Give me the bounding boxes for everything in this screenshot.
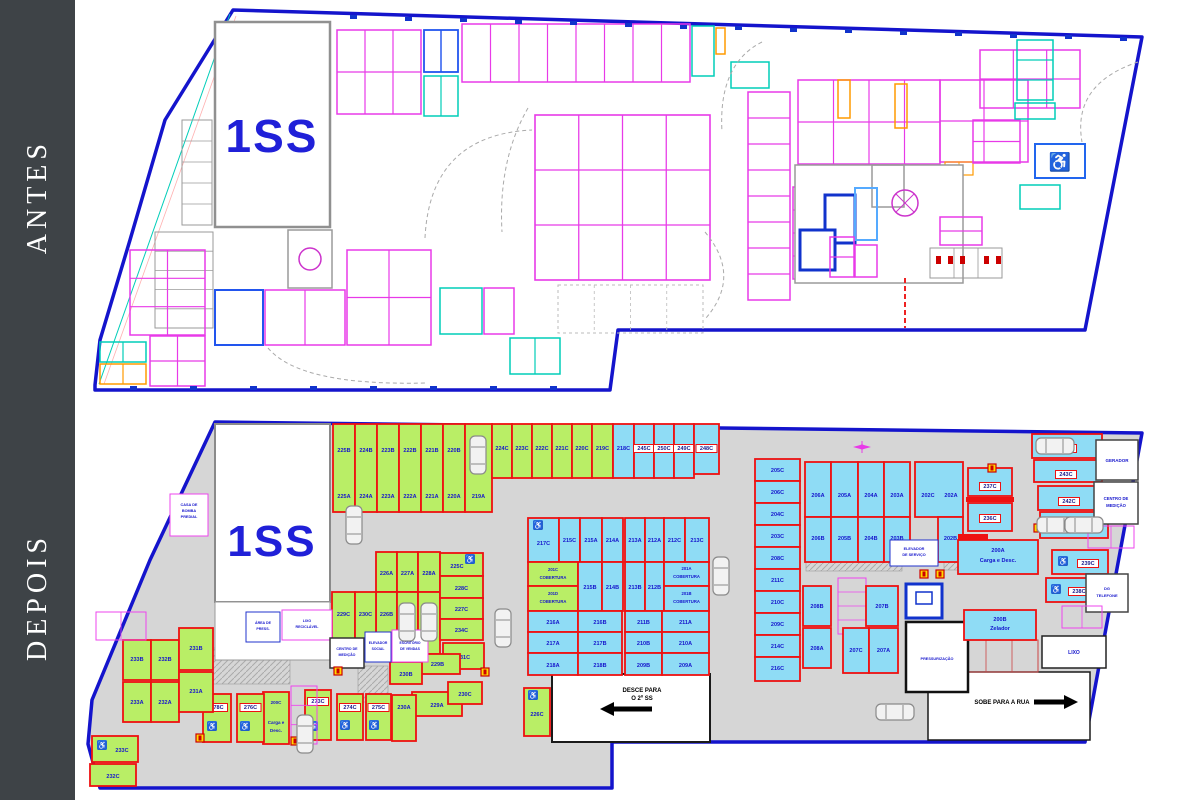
stall-label: 232B [158, 657, 171, 663]
stall-label: 202B [944, 536, 957, 542]
label-lixo: LIXO [1068, 650, 1080, 656]
stall-276C [237, 694, 264, 742]
stall-label: 217A [546, 641, 559, 647]
stall-label: 223C [515, 446, 528, 452]
stall-label: 224C [495, 446, 508, 452]
structural-column [460, 18, 467, 22]
stall-label: 218B [593, 663, 606, 669]
stall-label: 207B [875, 604, 888, 610]
stall-204A [858, 462, 884, 517]
wheelchair-glyph: ♿ [340, 720, 350, 730]
text: LIXO [303, 619, 312, 623]
car-glyph [346, 506, 362, 544]
stall-label: 231A [189, 689, 202, 695]
structural-column [680, 25, 687, 29]
stall-label: 205C [771, 468, 784, 474]
text: CENTRO DE [1104, 496, 1129, 501]
label-antes: ANTES [22, 139, 54, 254]
stall-label: 248C [700, 446, 713, 452]
stall-label: 209C [771, 622, 784, 628]
stall-label: 216B [593, 620, 606, 626]
stall-label: 231B [189, 646, 202, 652]
structural-column [310, 386, 317, 390]
text: MEDIÇÃO [1106, 503, 1127, 508]
car-glyph [495, 609, 511, 647]
stall-206A [805, 462, 831, 517]
stall-label: 212C [668, 538, 681, 544]
text: SOCIAL [372, 647, 385, 651]
car-glyph [713, 557, 729, 595]
stall-label: 207A [877, 648, 890, 654]
stall-275C [366, 694, 391, 740]
stall-label: 213B [628, 585, 641, 591]
stall-label: 227A [401, 571, 414, 577]
stall-label: 207C [849, 648, 862, 654]
stall-label: COBERTURA [673, 599, 700, 604]
stall-label: 221B [425, 448, 438, 454]
structural-column [1010, 34, 1017, 38]
car-body [421, 603, 437, 641]
wheelchair-glyph: ♿ [240, 721, 250, 731]
stall-label: 228C [455, 586, 468, 592]
stall-label: 200B [993, 617, 1006, 623]
stall-label: 275C [372, 705, 385, 711]
stall-label: 212B [648, 585, 661, 591]
label-gerador: GERADOR [1105, 458, 1129, 463]
stall-label: 274C [343, 705, 356, 711]
stall-label: 214A [606, 538, 619, 544]
stall-label: 212A [648, 538, 661, 544]
stall-label: Carga e [268, 720, 285, 725]
stall-label: COBERTURA [540, 599, 567, 604]
text: DG [1104, 586, 1110, 591]
stall-label: 226A [380, 571, 393, 577]
structural-column [190, 386, 197, 390]
car-glyph [297, 715, 313, 753]
fire-extinguisher-glyph [923, 572, 926, 577]
stall-label: 250C [657, 446, 670, 452]
structural-column [955, 32, 962, 36]
stall-label: 239C [1081, 561, 1094, 567]
stall-label: 217C [537, 541, 550, 547]
stall-label: 217B [593, 641, 606, 647]
text: CENTRO DE [336, 647, 358, 651]
stall-label: 243C [1059, 472, 1072, 478]
stall-label: 224B [359, 448, 372, 454]
stall-label: 210C [771, 600, 784, 606]
stall-label: 203A [890, 493, 903, 499]
text: PRESS. [256, 627, 269, 631]
structural-column [900, 31, 907, 35]
car-body [297, 715, 313, 753]
stall-label: 233B [130, 657, 143, 663]
label-sobe: SOBE PARA A RUA [974, 700, 1030, 706]
stall-200B [964, 610, 1036, 640]
stall-201C [528, 562, 578, 586]
stall-label: 205B [838, 536, 851, 542]
stall-label: 210A [679, 641, 692, 647]
wheelchair-glyph: ♿ [97, 740, 107, 750]
stall-label: 201B [681, 591, 691, 596]
structural-column [550, 386, 557, 390]
stall-202C [915, 462, 963, 517]
stall-label: 223B [381, 448, 394, 454]
stall-label: 202C [921, 493, 934, 499]
structural-column [250, 386, 257, 390]
stall-label: 230B [399, 672, 412, 678]
stall-label: 233C [115, 748, 128, 754]
car-body [346, 506, 362, 544]
text: TELEFONE [1096, 593, 1118, 598]
label-desce: DESCE PARA [623, 688, 663, 694]
stall-label: 211A [679, 620, 692, 626]
stall-label: 230C [359, 612, 372, 618]
text: DE SERVIÇO [902, 553, 925, 557]
stall-label: 213C [690, 538, 703, 544]
stall-label: 237C [983, 484, 996, 490]
stall-label: 221A [425, 494, 438, 500]
fire-extinguisher-glyph [939, 572, 942, 577]
elevator-shaft [906, 584, 942, 618]
structural-column [490, 386, 497, 390]
stall-label: 213A [628, 538, 641, 544]
stall-label: 273C [311, 699, 324, 705]
stall-label: 204B [864, 536, 877, 542]
wheelchair-glyph: ♿ [1058, 556, 1068, 566]
wc-fixtures [948, 256, 953, 264]
stall-label: 276C [244, 705, 257, 711]
stall-label: 225C [450, 564, 463, 570]
structural-column [625, 23, 632, 27]
stall-label: 216C [771, 666, 784, 672]
car-body [470, 436, 486, 474]
stall-label: 232A [158, 700, 171, 706]
fire-extinguisher-glyph [337, 669, 340, 674]
wheelchair-glyph: ♿ [1051, 584, 1061, 594]
structural-column [1065, 35, 1072, 39]
screenshot-stage: 1SS♿ 1SS225B225A224B224A223B223A222B222A… [0, 0, 1200, 800]
stall-label: 233A [130, 700, 143, 706]
stall-label: COBERTURA [673, 574, 700, 579]
stall-label: 222B [403, 448, 416, 454]
structural-column [130, 386, 137, 390]
structural-column [845, 29, 852, 33]
car-body [713, 557, 729, 595]
stall-label: 245C [637, 446, 650, 452]
stall-label: 229C [337, 612, 350, 618]
stall-label: 214B [606, 585, 619, 591]
stall-label: 236C [983, 516, 996, 522]
stall-label: 220B [447, 448, 460, 454]
structural-column [430, 386, 437, 390]
wc-fixtures [960, 256, 965, 264]
stall-label: 224A [359, 494, 372, 500]
car-glyph [470, 436, 486, 474]
stall-label: 218C [617, 446, 630, 452]
stall-label: 219C [596, 446, 609, 452]
stall-label: 219A [472, 494, 485, 500]
stall-label: 215A [584, 538, 597, 544]
stall-label: 222C [535, 446, 548, 452]
stall-label: 223A [381, 494, 394, 500]
wheelchair-glyph: ♿ [528, 690, 538, 700]
stall-label: 209B [637, 663, 650, 669]
stall-label: 238C [1072, 589, 1085, 595]
stall-label: 201C [548, 567, 558, 572]
text: CASA DE [181, 503, 198, 507]
stall-label: 200C [271, 700, 283, 705]
stall-label: 201A [681, 566, 691, 571]
sidebar: ANTES DEPOIS [0, 0, 75, 800]
stall-label: 209A [679, 663, 692, 669]
stall-label: Desc. [270, 728, 282, 733]
car-body [876, 704, 914, 720]
structural-column [790, 28, 797, 32]
car-glyph [876, 704, 914, 720]
wheelchair-glyph: ♿ [369, 720, 379, 730]
wheelchair-icon: ♿ [1049, 151, 1071, 172]
car-glyph [399, 603, 415, 641]
stall-label: 202A [944, 493, 957, 499]
car-glyph [1036, 438, 1074, 454]
stall-label: 208B [810, 604, 823, 610]
car-glyph [421, 603, 437, 641]
text: BOMBA [182, 509, 197, 513]
text: ELEVADOR [904, 547, 925, 551]
plan-antes: 1SS♿ [95, 10, 1142, 390]
stall-label: 205A [838, 493, 851, 499]
stall-label: COBERTURA [540, 575, 567, 580]
wheelchair-glyph: ♿ [207, 721, 217, 731]
structural-column [735, 26, 742, 30]
room-1ss [215, 424, 330, 602]
stall-label: 229B [431, 662, 444, 668]
stall-label: 210B [637, 641, 650, 647]
plan-depois: 1SS225B225A224B224A223B223A222B222A221B2… [88, 422, 1142, 788]
stall-label: 200A [991, 548, 1004, 554]
stall-label: Zelador [990, 626, 1011, 632]
text: MEDIÇÃO [339, 652, 356, 657]
stall-label: 206C [771, 490, 784, 496]
wheelchair-glyph: ♿ [533, 520, 543, 530]
stall-274C [337, 694, 363, 740]
car-glyph [1065, 517, 1103, 533]
structural-column [1120, 37, 1127, 41]
structural-column [370, 386, 377, 390]
stall-label: 204C [771, 512, 784, 518]
label-depois: DEPOIS [22, 533, 54, 661]
stall-label: 216A [546, 620, 559, 626]
stall-label: 201D [548, 591, 558, 596]
structural-column [405, 17, 412, 21]
stall-label: 214C [771, 644, 784, 650]
label-1ss: 1SS [226, 110, 319, 162]
wheelchair-glyph: ♿ [465, 554, 475, 564]
stall-label: 206A [811, 493, 824, 499]
stall-205A [831, 462, 858, 517]
stall-203A [884, 462, 910, 517]
floor-plans-drawing: 1SS♿ 1SS225B225A224B224A223B223A222B222A… [0, 0, 1200, 800]
stall-label: 229A [430, 703, 443, 709]
car-body [495, 609, 511, 647]
stall-label: 221C [555, 446, 568, 452]
stall-label: 220A [447, 494, 460, 500]
stall-label: 220C [575, 446, 588, 452]
structural-column [570, 21, 577, 25]
wc-fixtures [936, 256, 941, 264]
stall-label: 242C [1062, 499, 1075, 505]
structural-column [350, 15, 357, 19]
stall-label: 225B [337, 448, 350, 454]
car-body [1036, 438, 1074, 454]
stall-label: 206B [811, 536, 824, 542]
red-barrier [966, 497, 1014, 502]
stall-label: 215C [563, 538, 576, 544]
stall-230A [392, 695, 416, 741]
stall-label: Carga e Desc. [980, 558, 1017, 564]
stall-label: 215B [583, 585, 596, 591]
fire-extinguisher-glyph [199, 736, 202, 741]
stall-label: 230A [397, 705, 410, 711]
stall-200A [958, 540, 1038, 574]
text: PREDIAL [181, 515, 198, 519]
stall-label: 211B [637, 620, 650, 626]
wc-fixtures [996, 256, 1001, 264]
stall-label: 228A [422, 571, 435, 577]
stall-label: 226B [380, 612, 393, 618]
stall-label: 204A [864, 493, 877, 499]
stall-label: 230C [458, 692, 471, 698]
label-pressurizacao: PRESSURIZAÇÃO [921, 656, 954, 661]
stall-label: 226C [530, 712, 543, 718]
stall-label: 208C [771, 556, 784, 562]
text: DE VENDAS [400, 647, 421, 651]
stall-label: 222A [403, 494, 416, 500]
stall-label: 249C [677, 446, 690, 452]
fire-extinguisher-glyph [484, 670, 487, 675]
stall-label: 211C [771, 578, 784, 584]
fire-extinguisher-glyph [294, 739, 297, 744]
stall-label: 227C [455, 607, 468, 613]
label-desce2: O 2º SS [631, 696, 653, 702]
wc-fixtures [984, 256, 989, 264]
fire-extinguisher-glyph [991, 466, 994, 471]
stall-label: 208A [810, 646, 823, 652]
text: ELEVADOR [369, 641, 388, 645]
car-body [1065, 517, 1103, 533]
stall-label: 232C [106, 774, 119, 780]
text: RECICLÁVEL [296, 624, 320, 629]
stall-label: 234C [455, 628, 468, 634]
stall-label: 225A [337, 494, 350, 500]
stall-label: 203C [771, 534, 784, 540]
car-body [399, 603, 415, 641]
stall-label: 218A [546, 663, 559, 669]
label-1ss: 1SS [227, 517, 316, 566]
structural-column [515, 20, 522, 24]
stair-core [288, 230, 332, 288]
text: ÁREA DE [255, 620, 272, 625]
